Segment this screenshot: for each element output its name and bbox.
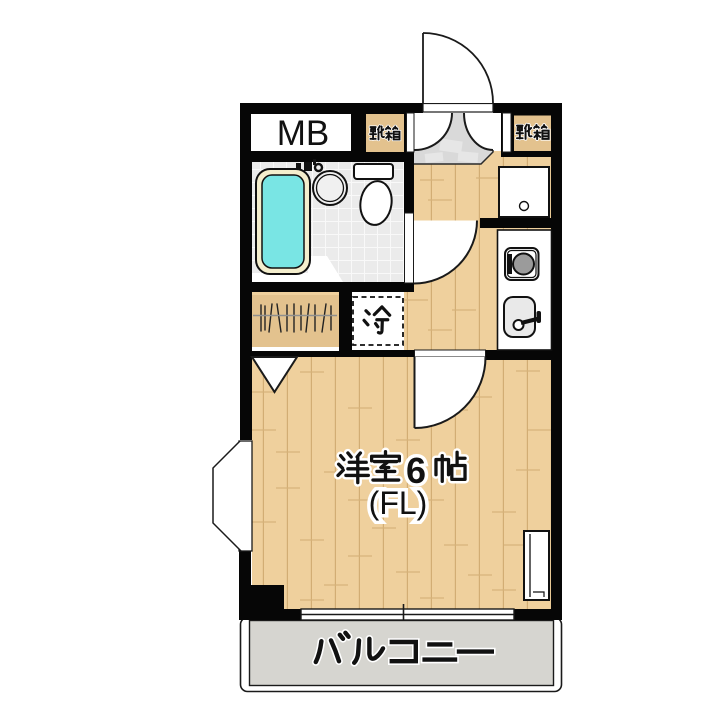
svg-text:(FL): (FL) xyxy=(369,485,428,521)
svg-text:MB: MB xyxy=(277,114,330,153)
